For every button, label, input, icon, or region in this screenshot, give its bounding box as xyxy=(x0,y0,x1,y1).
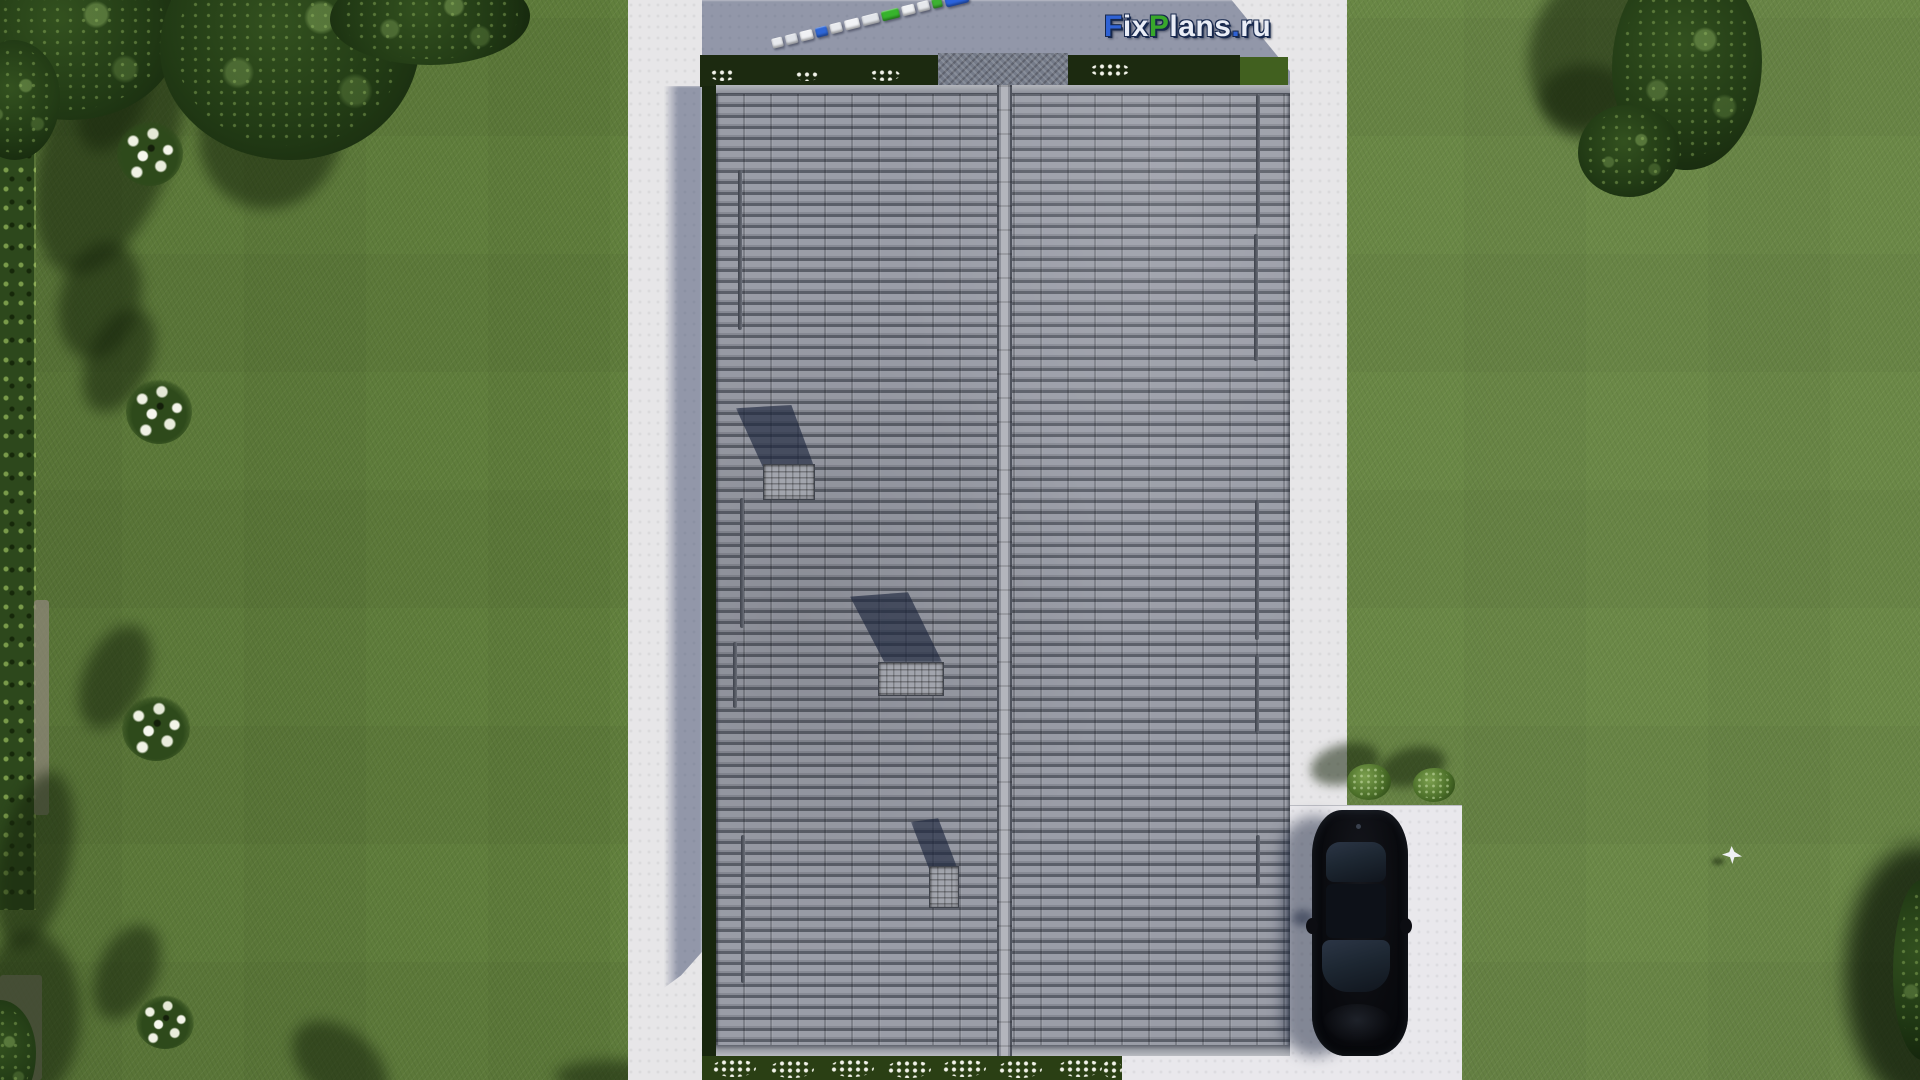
roof-bar xyxy=(1255,655,1259,733)
watermark-segment: F xyxy=(1104,10,1123,43)
shrub xyxy=(1347,764,1391,800)
car-body xyxy=(1312,810,1408,1056)
flower-bed-bottom xyxy=(702,1056,1122,1080)
white-flowers xyxy=(1090,63,1130,77)
white-flowers xyxy=(998,1060,1042,1078)
tree-canopy xyxy=(1578,105,1680,197)
white-flowers xyxy=(830,1059,874,1077)
roof-bar xyxy=(733,642,737,708)
watermark-segment: lans xyxy=(1169,10,1231,43)
left-path xyxy=(628,0,702,1080)
shrub xyxy=(1413,768,1455,802)
house-roof xyxy=(716,85,1290,1056)
chimney xyxy=(763,464,815,500)
flowering-bush xyxy=(136,995,194,1049)
white-flowers xyxy=(870,69,900,81)
chimney xyxy=(929,866,959,908)
white-flowers xyxy=(710,69,736,81)
house-shadow-on-path xyxy=(664,86,702,988)
parked-car xyxy=(1308,808,1412,1060)
white-flowers xyxy=(1102,1060,1122,1078)
watermark-segment: P xyxy=(1149,10,1170,43)
bird-shadow xyxy=(1712,858,1724,865)
aerial-house-render: FixPlans.ru xyxy=(0,0,1920,1080)
watermark-segment: . xyxy=(1231,10,1240,43)
flowering-bush xyxy=(117,120,183,186)
roof-bar xyxy=(1254,234,1258,361)
roof-bar xyxy=(1256,95,1260,227)
garden-bed-top-right xyxy=(1068,55,1240,87)
watermark-segment: ru xyxy=(1240,10,1271,43)
car-windshield xyxy=(1322,940,1390,992)
train-car xyxy=(814,25,828,38)
chimney-shadow xyxy=(736,403,814,468)
train-car xyxy=(829,21,843,34)
train-car xyxy=(799,28,814,41)
white-flowers xyxy=(887,1060,931,1078)
roof-vent xyxy=(878,662,944,696)
train-car xyxy=(861,12,880,26)
white-flowers xyxy=(795,71,819,81)
flowering-bush xyxy=(126,378,192,444)
train-car xyxy=(916,0,930,12)
hedge xyxy=(0,48,36,910)
roof-bar xyxy=(1255,500,1259,640)
watermark-segment: ix xyxy=(1123,10,1149,43)
train-car xyxy=(901,3,916,16)
roof-ridge xyxy=(997,85,1012,1056)
roof-bar xyxy=(740,498,744,628)
white-flowers xyxy=(1058,1059,1102,1077)
white-flowers xyxy=(770,1060,814,1078)
car-mirror-left xyxy=(1306,918,1318,934)
garden-bed-top-left xyxy=(700,55,938,87)
roof-bar xyxy=(741,835,745,983)
fixplans-watermark: FixPlans.ru xyxy=(1104,10,1271,44)
roof-bar xyxy=(738,170,742,330)
train-car xyxy=(844,17,861,30)
chimney-shadow xyxy=(850,590,942,664)
train-car xyxy=(931,0,943,8)
car-hood-highlight xyxy=(1322,1004,1392,1044)
white-flowers xyxy=(942,1059,986,1077)
train-car xyxy=(771,36,784,48)
gravel-strip xyxy=(938,53,1068,86)
train-car xyxy=(784,32,798,45)
car-rear-window xyxy=(1326,842,1386,882)
flowering-bush xyxy=(122,695,190,761)
chimney-shadow xyxy=(911,816,957,871)
train-car xyxy=(880,7,900,21)
right-path xyxy=(1290,0,1347,810)
garden-bed-lit xyxy=(1240,57,1288,87)
white-flowers xyxy=(712,1059,756,1077)
car-mirror-right xyxy=(1400,918,1412,934)
car-antenna xyxy=(1356,824,1361,829)
roof-bar xyxy=(1256,835,1260,887)
car-roof-panel xyxy=(1326,884,1386,938)
